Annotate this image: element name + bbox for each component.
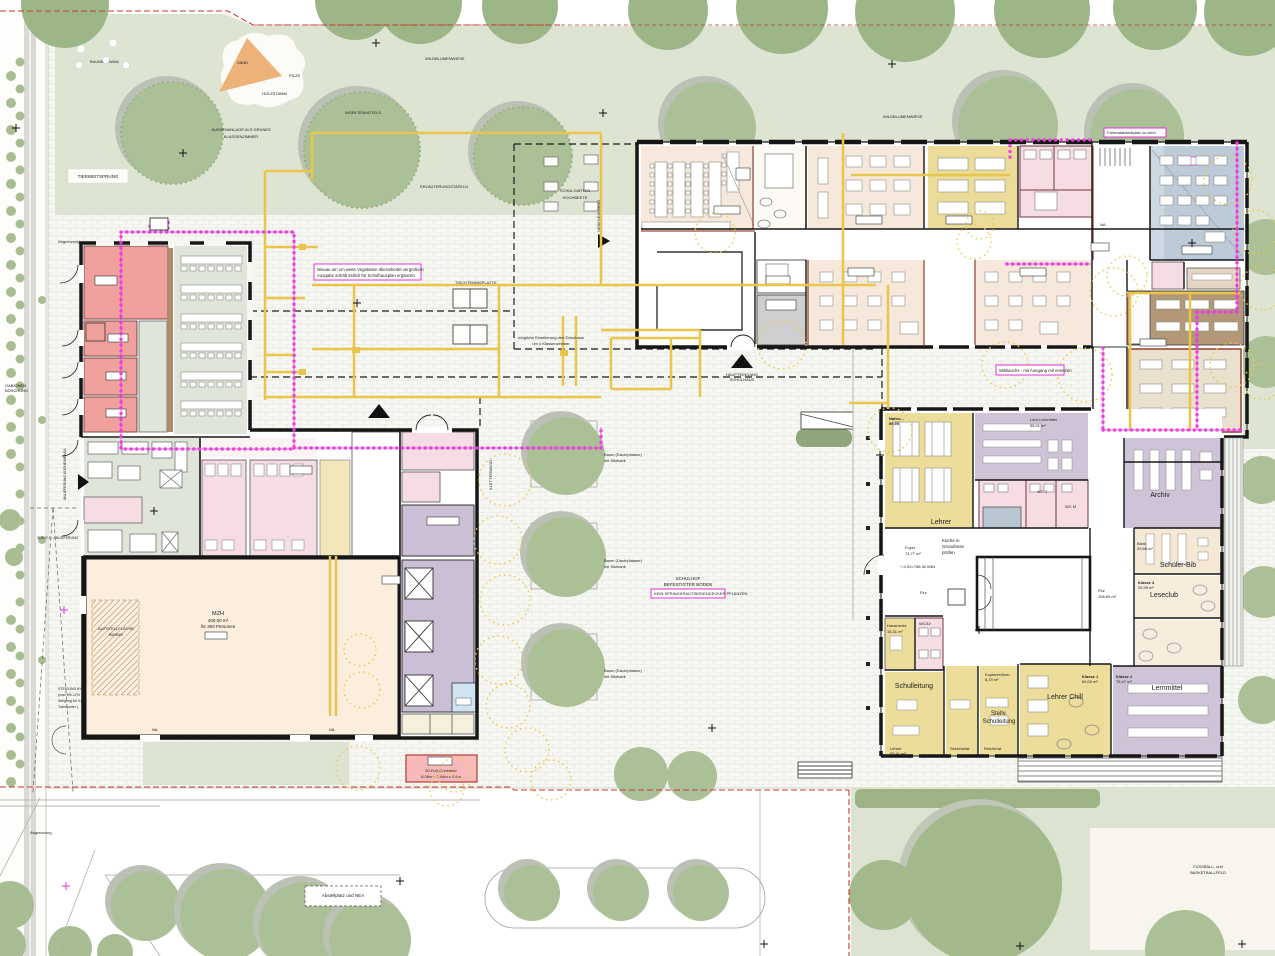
- svg-text:SCHULHOF: SCHULHOF: [676, 576, 701, 581]
- svg-text:BASKETBALLFELD: BASKETBALLFELD: [1190, 870, 1226, 875]
- svg-text:AUSSENANLAGE ALS GRÜNES: AUSSENANLAGE ALS GRÜNES: [211, 127, 271, 132]
- svg-text:Archiv: Archiv: [1150, 492, 1170, 499]
- svg-text:WILDBLUMENWIESE: WILDBLUMENWIESE: [883, 114, 923, 119]
- svg-text:FUSSBALL- und: FUSSBALL- und: [1193, 864, 1223, 869]
- svg-text:WC J: WC J: [1037, 489, 1047, 494]
- svg-text:6,19 m²: 6,19 m²: [985, 677, 999, 682]
- svg-text:Lehr-Lernmittel: Lehr-Lernmittel: [1030, 417, 1057, 422]
- svg-text:Niveau um 1m weite Vegetation: Niveau um 1m weite Vegetation überarbeit…: [317, 267, 424, 272]
- svg-text:108,69 m²: 108,69 m²: [1098, 594, 1117, 599]
- svg-text:KLETTERWAND: KLETTERWAND: [488, 460, 493, 490]
- svg-text:mit Sitzbank: mit Sitzbank: [604, 674, 626, 679]
- svg-text:Lernmittel: Lernmittel: [1152, 685, 1183, 692]
- svg-text:29,39 m²: 29,39 m²: [1138, 585, 1154, 590]
- svg-text:WC M: WC M: [1065, 504, 1076, 509]
- svg-text:HOLZSTAMM: HOLZSTAMM: [262, 91, 287, 96]
- svg-text:Ausgabe anhält östlich für Sch: Ausgabe anhält östlich für Schulhausplan…: [317, 273, 416, 278]
- svg-text:Reicherat: Reicherat: [984, 746, 1002, 751]
- svg-text:NA: NA: [329, 727, 335, 732]
- svg-text:Baum (Dach/platane): Baum (Dach/platane): [604, 558, 642, 563]
- svg-text:mit Sitzbank: mit Sitzbank: [604, 458, 626, 463]
- svg-text:Wildwuchs - mit Ausgang mit er: Wildwuchs - mit Ausgang mit ersetzen: [999, 368, 1072, 373]
- svg-text:Baum (Dach/platane): Baum (Dach/platane): [604, 452, 642, 457]
- svg-text:Flur: Flur: [1098, 588, 1106, 593]
- svg-text:TISCHTENNISPLATTE: TISCHTENNISPLATTE: [455, 280, 497, 285]
- svg-text:Fahrradabstellplatz zu klein: Fahrradabstellplatz zu klein: [1107, 130, 1156, 135]
- svg-text:KEIN SPRINGKRAUT/BODENDECKER P: KEIN SPRINGKRAUT/BODENDECKER PFLANZEN: [654, 591, 747, 596]
- svg-text:PILZE: PILZE: [289, 73, 300, 78]
- svg-text:BÖSCHUNG: BÖSCHUNG: [5, 388, 28, 393]
- svg-text:74,77 m²: 74,77 m²: [905, 551, 921, 556]
- svg-text:Baum (Dach/platane): Baum (Dach/platane): [604, 668, 642, 673]
- svg-text:MZH: MZH: [212, 611, 224, 617]
- svg-text:Steigung für 3,5t: Steigung für 3,5t: [58, 699, 84, 703]
- svg-text:Schulleitung: Schulleitung: [983, 719, 1016, 725]
- svg-text:Lehrer: Lehrer: [931, 519, 952, 526]
- svg-text:78,47 m²: 78,47 m²: [1116, 679, 1132, 684]
- svg-text:Abstellplatz und NEA: Abstellplatz und NEA: [322, 893, 364, 898]
- svg-text:SCHULHAUS: SCHULHAUS: [730, 377, 755, 382]
- svg-text:Schüler-Bib: Schüler-Bib: [1160, 562, 1196, 569]
- svg-text:Transporter ): Transporter ): [58, 705, 78, 709]
- svg-text:STEIGUNG 8%: STEIGUNG 8%: [58, 687, 82, 691]
- svg-text:WC/D/: WC/D/: [919, 621, 932, 626]
- svg-text:Lehrer Chill: Lehrer Chill: [1047, 694, 1083, 701]
- svg-text:20-Fuß-Container: 20-Fuß-Container: [425, 768, 457, 773]
- svg-text:Hausmeist.: Hausmeist.: [887, 623, 907, 628]
- svg-text:Abgrenzung: Abgrenzung: [58, 239, 80, 244]
- svg-text:58,41 m²: 58,41 m²: [1030, 423, 1046, 428]
- svg-text:um 4 Klassenzimmer: um 4 Klassenzimmer: [532, 341, 570, 346]
- svg-text:WILDBLUMENWIESE: WILDBLUMENWIESE: [425, 56, 465, 61]
- svg-text:BEFESTIGTER BODEN: BEFESTIGTER BODEN: [664, 582, 713, 587]
- svg-text:Abgrenzung: Abgrenzung: [30, 830, 52, 835]
- svg-text:ZUM E.G. ANLIEFERUNG: ZUM E.G. ANLIEFERUNG: [37, 536, 79, 540]
- svg-text:NEBENEINGANG: NEBENEINGANG: [596, 200, 601, 232]
- svg-text:mögliche Erweiterung des Schul: mögliche Erweiterung des Schulhaus: [518, 335, 584, 340]
- svg-text:29,68 m²: 29,68 m²: [1137, 546, 1153, 551]
- svg-text:NA: NA: [1100, 222, 1106, 227]
- svg-text:400,00 m²: 400,00 m²: [208, 618, 229, 623]
- svg-text:Stellv.: Stellv.: [991, 711, 1007, 717]
- svg-text:53,41 m²: 53,41 m²: [890, 751, 906, 756]
- svg-text:Küche in: Küche in: [942, 538, 960, 543]
- svg-text:16,31 m²: 16,31 m²: [887, 629, 903, 634]
- svg-text:KLASSENZIMMER: KLASSENZIMMER: [224, 134, 258, 139]
- svg-text:Flur: Flur: [920, 590, 928, 595]
- svg-text:SAND: SAND: [237, 60, 248, 65]
- svg-text:AUFSTELLFLÄCHE: AUFSTELLFLÄCHE: [98, 626, 134, 631]
- svg-text:Foyer: Foyer: [905, 545, 916, 550]
- svg-text:TIERWEITSPRUNG: TIERWEITSPRUNG: [78, 174, 119, 179]
- svg-text:mit Sitzbank: mit Sitzbank: [604, 564, 626, 569]
- svg-text:ERLÄUTERUNGSTAFELN: ERLÄUTERUNGSTAFELN: [420, 184, 468, 189]
- svg-text:NA: NA: [152, 727, 158, 732]
- svg-text:Schulleitung: Schulleitung: [895, 683, 933, 690]
- svg-text:59,95: 59,95: [889, 421, 900, 426]
- svg-text:ANLIEFERUNG KÜCHE/MENSA: ANLIEFERUNG KÜCHE/MENSA: [63, 448, 67, 500]
- svg-text:Grundrisse: Grundrisse: [942, 544, 965, 549]
- svg-text:Leseclub: Leseclub: [1150, 592, 1178, 599]
- svg-text:69,00 m²: 69,00 m²: [1082, 679, 1098, 684]
- svg-text:für 300 Personen: für 300 Personen: [201, 624, 236, 629]
- svg-text:+-0,00=768,40 üNN: +-0,00=768,40 üNN: [900, 564, 935, 569]
- svg-text:prüfen: prüfen: [942, 550, 955, 555]
- svg-text:INSEKTENHOTELS: INSEKTENHOTELS: [345, 110, 381, 115]
- svg-text:BÜHNE: BÜHNE: [109, 632, 123, 637]
- svg-text:6,06m x 2,44m x 2,9m: 6,06m x 2,44m x 2,9m: [421, 774, 461, 779]
- svg-text:SCHULGARTEN: SCHULGARTEN: [560, 188, 590, 193]
- svg-text:Sekretariat: Sekretariat: [950, 746, 970, 751]
- svg-text:(max 6%-12%: (max 6%-12%: [58, 693, 80, 697]
- svg-text:HOCHBEETE: HOCHBEETE: [563, 195, 588, 200]
